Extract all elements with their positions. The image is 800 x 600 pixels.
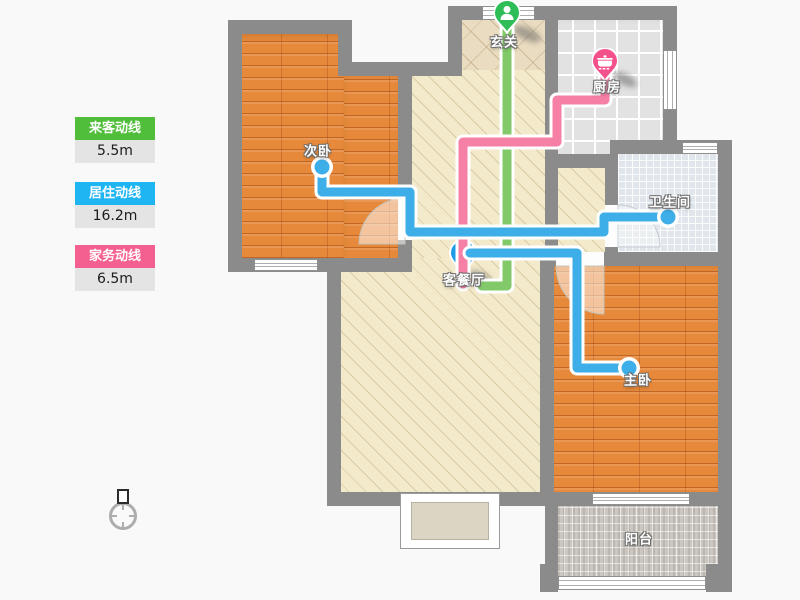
wall bbox=[540, 252, 554, 506]
wall bbox=[228, 20, 352, 34]
floor-bedroom2 bbox=[344, 68, 400, 264]
room-label-bedroom2: 次卧 bbox=[304, 141, 332, 160]
legend-item-guest: 来客动线 5.5m bbox=[75, 117, 155, 163]
wall bbox=[545, 168, 558, 258]
legend-guest-label[interactable]: 来客动线 bbox=[75, 117, 155, 140]
wall bbox=[718, 266, 732, 506]
compass-tick bbox=[122, 522, 124, 528]
floor-living bbox=[341, 258, 545, 500]
wall bbox=[228, 20, 242, 272]
legend-item-housework: 家务动线 6.5m bbox=[75, 245, 155, 291]
legend-resident-value: 16.2m bbox=[75, 205, 155, 228]
room-label-entry: 玄关 bbox=[490, 32, 518, 51]
compass-tick bbox=[129, 515, 135, 517]
wall bbox=[545, 6, 677, 20]
legend-guest-value: 5.5m bbox=[75, 140, 155, 163]
room-label-balcony: 阳台 bbox=[625, 529, 653, 548]
compass-tick bbox=[122, 504, 124, 510]
wall bbox=[545, 14, 558, 164]
bay-window-sill bbox=[411, 502, 489, 540]
entry-marker[interactable] bbox=[494, 0, 520, 34]
balcony-railing bbox=[558, 576, 706, 590]
door-opening-bedroom2 bbox=[398, 188, 412, 240]
north-indicator-icon bbox=[117, 489, 129, 504]
wall bbox=[718, 140, 732, 266]
legend-housework-value: 6.5m bbox=[75, 268, 155, 291]
window bbox=[663, 50, 677, 110]
legend-item-resident: 居住动线 16.2m bbox=[75, 182, 155, 228]
wall bbox=[706, 564, 732, 592]
compass-tick bbox=[111, 515, 117, 517]
window bbox=[682, 142, 718, 154]
legend-resident-label[interactable]: 居住动线 bbox=[75, 182, 155, 205]
wall bbox=[540, 564, 558, 592]
window bbox=[254, 259, 318, 271]
door-opening-bathroom bbox=[605, 205, 618, 247]
room-label-kitchen: 厨房 bbox=[593, 77, 621, 96]
door-opening-master bbox=[556, 252, 604, 266]
room-label-bathroom: 卫生间 bbox=[649, 192, 691, 211]
window bbox=[592, 493, 690, 505]
bay-window bbox=[400, 493, 500, 549]
room-label-living: 客餐厅 bbox=[443, 270, 485, 289]
wall bbox=[327, 258, 341, 506]
wall bbox=[448, 6, 482, 20]
legend-housework-label[interactable]: 家务动线 bbox=[75, 245, 155, 268]
floorplan-canvas: 来客动线 5.5m 居住动线 16.2m 家务动线 6.5m bbox=[0, 0, 800, 600]
room-label-master: 主卧 bbox=[624, 370, 652, 389]
